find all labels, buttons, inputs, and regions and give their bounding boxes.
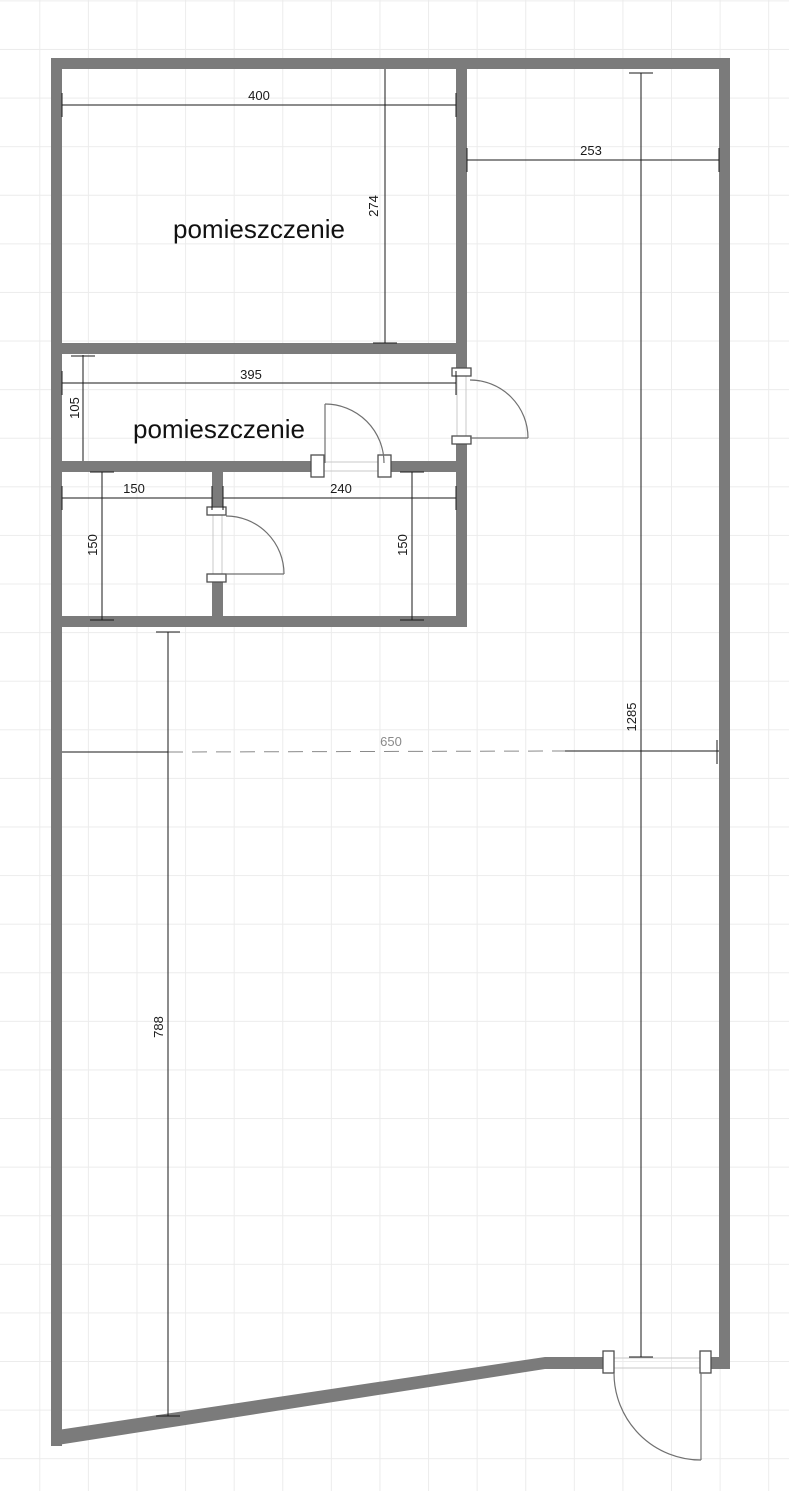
- wall-top: [51, 58, 730, 69]
- wall-room1-bottom: [51, 343, 467, 354]
- wall-bottom-diagonal: [51, 1357, 545, 1446]
- dimension-label: 650: [380, 734, 402, 749]
- door-jamb: [378, 455, 391, 477]
- room-label-middle: pomieszczenie: [133, 414, 305, 444]
- dimension-small-room-left-height: 150: [85, 472, 114, 620]
- door-arc: [226, 516, 284, 574]
- dimension-label: 395: [240, 367, 262, 382]
- dimension-small-room-left-width: 150: [62, 481, 212, 510]
- dimension-small-room-right-width: 240: [223, 481, 456, 510]
- dimension-label: 1285: [624, 703, 639, 732]
- door-arc: [470, 380, 528, 438]
- door-jamb: [207, 574, 226, 582]
- door-swing-small-rooms: [226, 516, 284, 574]
- wall-bottom-entry-right: [711, 1357, 730, 1369]
- door-arc: [325, 404, 384, 463]
- dimension-label: 150: [123, 481, 145, 496]
- wall-right: [719, 58, 730, 1369]
- dimension-hall-height: 788: [151, 632, 180, 1416]
- dimension-label: 105: [67, 397, 82, 419]
- room-labels: pomieszczenie pomieszczenie: [133, 214, 345, 444]
- dimension-label: 150: [395, 534, 410, 556]
- dimension-middle-room-height: 105: [67, 355, 95, 461]
- door-swing-entry: [614, 1373, 701, 1460]
- dimension-label: 240: [330, 481, 352, 496]
- wall-divider-upper: [456, 58, 467, 368]
- door-jamb: [603, 1351, 614, 1373]
- wall-bottom-entry-left: [545, 1357, 604, 1369]
- dimension-label: 400: [248, 88, 270, 103]
- dimension-top-room-height: 274: [366, 69, 397, 343]
- wall-left: [51, 58, 62, 1446]
- dimension-middle-room-width: 395: [62, 367, 456, 395]
- wall-room2-bottom-left: [51, 461, 324, 472]
- dimension-overall-height: 1285: [624, 73, 653, 1357]
- dimension-corridor-width: 253: [467, 143, 719, 172]
- door-jamb: [700, 1351, 711, 1373]
- door-jamb: [311, 455, 324, 477]
- dimension-top-room-width: 400: [62, 88, 456, 117]
- dimension-label: 150: [85, 534, 100, 556]
- dimension-label: 788: [151, 1016, 166, 1038]
- dimensions: 400 274 253 395 10: [62, 69, 719, 1416]
- floor-plan-canvas: 400 274 253 395 10: [0, 0, 789, 1491]
- door-jamb: [452, 368, 471, 376]
- door-jamb: [452, 436, 471, 444]
- dimension-label: 274: [366, 195, 381, 217]
- wall-smallrooms-divider-bottom: [212, 582, 223, 616]
- dimension-label: 253: [580, 143, 602, 158]
- door-swing-middle-room: [325, 404, 384, 463]
- wall-smallrooms-bottom: [51, 616, 467, 627]
- dimension-small-room-right-height: 150: [395, 472, 424, 620]
- dimension-line-faded: [168, 751, 565, 752]
- dimension-hall-width: 650: [62, 734, 719, 764]
- floor-plan: 400 274 253 395 10: [0, 0, 789, 1491]
- wall-smallrooms-divider-top: [212, 472, 223, 507]
- room-label-top: pomieszczenie: [173, 214, 345, 244]
- door-swing-corridor: [470, 380, 528, 438]
- door-arc: [614, 1373, 701, 1460]
